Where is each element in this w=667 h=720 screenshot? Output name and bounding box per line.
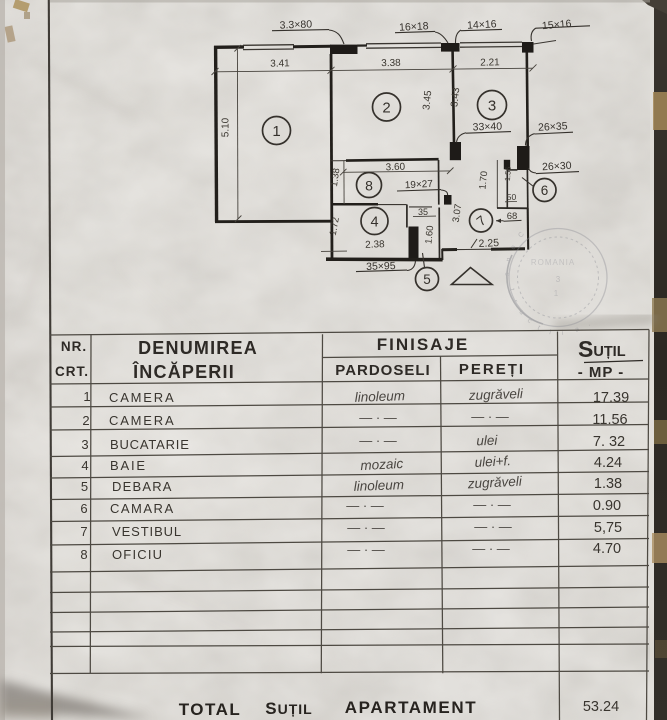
svg-text:— · —: — · — <box>359 433 397 448</box>
svg-text:SUȚIL: SUȚIL <box>265 699 312 718</box>
svg-text:26×30: 26×30 <box>542 160 572 174</box>
svg-text:3: 3 <box>556 275 561 284</box>
svg-text:BAIE: BAIE <box>110 458 147 473</box>
svg-text:— · —: — · — <box>359 410 397 425</box>
svg-text:2: 2 <box>382 100 390 117</box>
svg-text:— · —: — · — <box>472 541 510 556</box>
svg-text:CAMARA: CAMARA <box>110 501 175 516</box>
svg-text:DEBARA: DEBARA <box>112 479 173 494</box>
svg-text:1: 1 <box>272 123 280 140</box>
svg-text:4.70: 4.70 <box>593 541 621 557</box>
svg-text:3: 3 <box>81 437 88 452</box>
svg-text:19×27: 19×27 <box>405 179 434 191</box>
svg-text:4: 4 <box>81 458 88 473</box>
svg-text:BUCATARIE: BUCATARIE <box>110 437 190 452</box>
svg-text:1.70: 1.70 <box>477 170 490 190</box>
svg-text:2.25: 2.25 <box>478 237 499 250</box>
svg-text:NR.: NR. <box>61 339 87 354</box>
svg-text:linoleum: linoleum <box>354 388 405 405</box>
svg-text:CAMERA: CAMERA <box>109 413 175 428</box>
svg-text:FINISAJE: FINISAJE <box>377 335 470 354</box>
svg-text:DENUMIREA: DENUMIREA <box>138 338 258 358</box>
svg-text:5,75: 5,75 <box>594 520 622 536</box>
svg-text:5.10: 5.10 <box>221 117 232 137</box>
svg-text:17.39: 17.39 <box>593 390 629 406</box>
svg-text:6: 6 <box>80 501 87 516</box>
svg-text:2.38: 2.38 <box>365 239 385 251</box>
svg-text:TOTAL: TOTAL <box>179 700 242 719</box>
svg-text:PARDOSELI: PARDOSELI <box>335 362 430 379</box>
svg-text:mozaic: mozaic <box>360 456 404 473</box>
svg-text:APARTAMENT: APARTAMENT <box>345 698 477 717</box>
svg-text:— · —: — · — <box>346 498 384 513</box>
svg-text:1.60: 1.60 <box>423 225 436 245</box>
svg-text:2: 2 <box>82 413 89 428</box>
svg-text:ÎNCĂPERII: ÎNCĂPERII <box>132 361 235 382</box>
svg-text:— · —: — · — <box>347 542 385 557</box>
svg-text:8: 8 <box>80 547 87 562</box>
svg-text:zugrăveli: zugrăveli <box>468 386 525 403</box>
svg-text:— · —: — · — <box>473 497 511 512</box>
svg-text:2.21: 2.21 <box>480 57 500 68</box>
svg-text:3.60: 3.60 <box>385 162 405 174</box>
svg-text:CAMERA: CAMERA <box>109 390 175 405</box>
svg-text:ROMANIA: ROMANIA <box>531 258 575 267</box>
svg-text:ulei: ulei <box>476 433 499 449</box>
svg-text:1.55: 1.55 <box>503 166 513 181</box>
svg-text:3.38: 3.38 <box>381 58 401 69</box>
svg-text:0.90: 0.90 <box>593 498 621 514</box>
svg-text:53.24: 53.24 <box>583 699 619 715</box>
svg-text:3: 3 <box>488 98 496 115</box>
svg-text:6: 6 <box>541 183 549 198</box>
svg-text:8: 8 <box>365 178 373 194</box>
svg-text:1.38: 1.38 <box>594 476 622 492</box>
svg-text:— · —: — · — <box>347 520 385 535</box>
svg-text:26×35: 26×35 <box>538 120 568 134</box>
svg-text:VESTIBUL: VESTIBUL <box>112 524 182 539</box>
svg-text:OFICIU: OFICIU <box>112 547 163 562</box>
svg-text:50: 50 <box>507 192 517 202</box>
svg-text:— · —: — · — <box>471 409 509 424</box>
svg-text:zugrăveli: zugrăveli <box>466 474 523 492</box>
svg-text:3.43: 3.43 <box>449 87 462 108</box>
svg-text:- MP -: - MP - <box>578 364 625 381</box>
svg-text:4.24: 4.24 <box>594 455 622 471</box>
svg-text:7: 7 <box>80 524 87 539</box>
svg-text:1: 1 <box>83 389 90 404</box>
svg-text:— · —: — · — <box>474 519 512 534</box>
svg-text:3.41: 3.41 <box>270 58 290 69</box>
svg-text:PEREȚI: PEREȚI <box>459 361 525 378</box>
svg-text:linoleum: linoleum <box>353 477 404 494</box>
svg-text:3.45: 3.45 <box>421 90 434 111</box>
svg-text:35: 35 <box>418 207 428 217</box>
svg-text:5: 5 <box>423 272 431 287</box>
svg-text:11.56: 11.56 <box>592 412 627 428</box>
svg-text:5: 5 <box>81 479 88 494</box>
svg-text:7. 32: 7. 32 <box>593 434 625 450</box>
svg-text:CRT.: CRT. <box>55 364 89 379</box>
svg-text:ulei+f.: ulei+f. <box>474 453 511 470</box>
svg-text:4: 4 <box>370 215 378 231</box>
svg-text:1: 1 <box>554 289 559 298</box>
